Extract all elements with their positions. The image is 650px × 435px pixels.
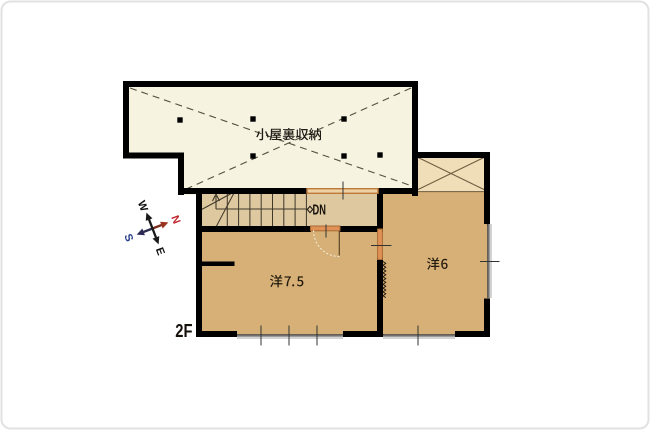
svg-text:2F: 2F [175, 320, 192, 341]
svg-text:DN: DN [313, 202, 326, 218]
